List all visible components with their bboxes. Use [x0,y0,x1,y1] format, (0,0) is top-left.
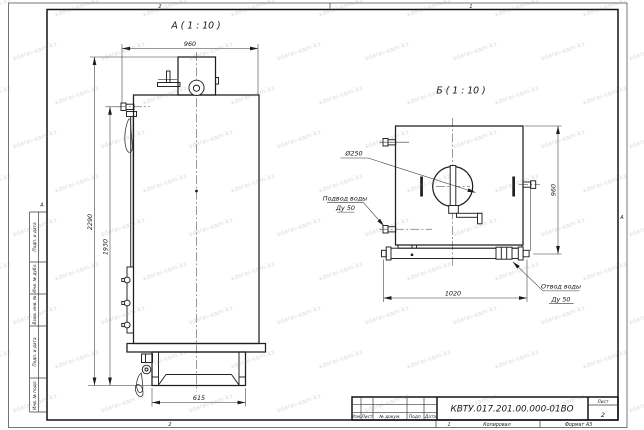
zone-number: 2 [168,422,171,428]
pipe-stub-inlet [380,226,433,234]
svg-text:960: 960 [550,184,558,196]
dim-top-overall: 1020 [384,260,528,303]
label-water-inlet: Подвод воды Ду 50 [323,194,384,226]
drawing-sheet: 2 1 2 А А Подп. и дата Инв. № дубл. Взам… [0,0,644,430]
top-view-title: Б ( 1 : 10 ) [436,86,485,97]
front-view: А ( 1 : 10 ) [86,21,266,407]
title-block: Изм. Лист № докум. Подп. Дата КВТУ.017.2… [351,397,618,420]
outlet-fitting [496,247,512,259]
inner-border [47,10,618,421]
pipe-stub-right [519,181,540,251]
title-block-col-izm: Изм. [351,414,361,420]
document-number: КВТУ.017.201.00.000-01ВО [450,404,573,414]
dim-front-pipe-height: 1930 [102,107,121,386]
svg-text:2290: 2290 [86,214,94,230]
collector-pipe [382,245,530,260]
side-slot [512,177,515,197]
zone-number: 1 [469,4,472,10]
outer-border [9,3,628,428]
svg-text:Отвод воды: Отвод воды [541,282,581,290]
left-column-label: Подп. и дата [32,222,38,252]
dim-top-depth: 960 [525,126,562,254]
side-slot [420,177,423,197]
damper-lever [158,71,181,87]
svg-text:Ду 50: Ду 50 [335,204,355,212]
dim-front-base: 615 [152,388,246,407]
top-view: Б ( 1 : 10 ) [323,86,581,304]
sheet-label: Лист [597,399,609,405]
left-column-label: Взам. инв. № [32,295,38,325]
door-hinge-strip [122,267,134,333]
title-block-col-list: Лист [361,414,373,420]
pipe-stub-top-left [380,139,410,147]
zone-number: 2 [158,4,161,10]
zone-letter-right: А [619,215,624,221]
left-column-label: Инв. № дубл. [32,263,38,292]
center-mark [195,190,198,193]
svg-text:1020: 1020 [445,289,461,297]
latch-hardware [134,354,153,398]
title-block-footer: 1 Копировал Формат А3 [436,420,592,428]
svg-text:1930: 1930 [102,239,110,255]
title-block-col-data: Дата [424,414,436,420]
sheet-number: 2 [601,411,605,419]
svg-text:960: 960 [184,40,196,48]
zone-number: 1 [447,422,450,428]
door-handle-rod [125,112,137,268]
title-block-col-doc: № докум. [378,414,400,420]
svg-text:615: 615 [193,394,205,402]
format-label: Формат А3 [565,422,592,428]
dim-front-total-height: 2290 [86,57,178,386]
left-column-label: Инв. № подл. [32,380,38,410]
svg-text:Подвод воды: Подвод воды [323,194,367,202]
sheet-frame: 2 1 2 А А [9,3,628,428]
dim-front-width: 960 [122,40,258,103]
svg-text:Ду 50: Ду 50 [551,295,571,303]
label-water-outlet: Отвод воды Ду 50 [513,262,581,304]
drawing-sheet-svg: 2 1 2 А А Подп. и дата Инв. № дубл. Взам… [0,0,644,430]
front-view-title: А ( 1 : 10 ) [170,21,220,32]
left-column-label: Подп. и дата [32,337,38,367]
zone-letter-left: А [39,203,44,209]
svg-text:Ø250: Ø250 [344,150,362,158]
lifting-lug [189,80,204,95]
pipe-stub-front [118,103,151,111]
boiler-top-body [396,126,524,245]
frame-left-column: Подп. и дата Инв. № дубл. Взам. инв. № П… [30,212,48,412]
copied-label: Копировал [483,422,510,428]
title-block-col-podp: Подп. [409,414,422,420]
